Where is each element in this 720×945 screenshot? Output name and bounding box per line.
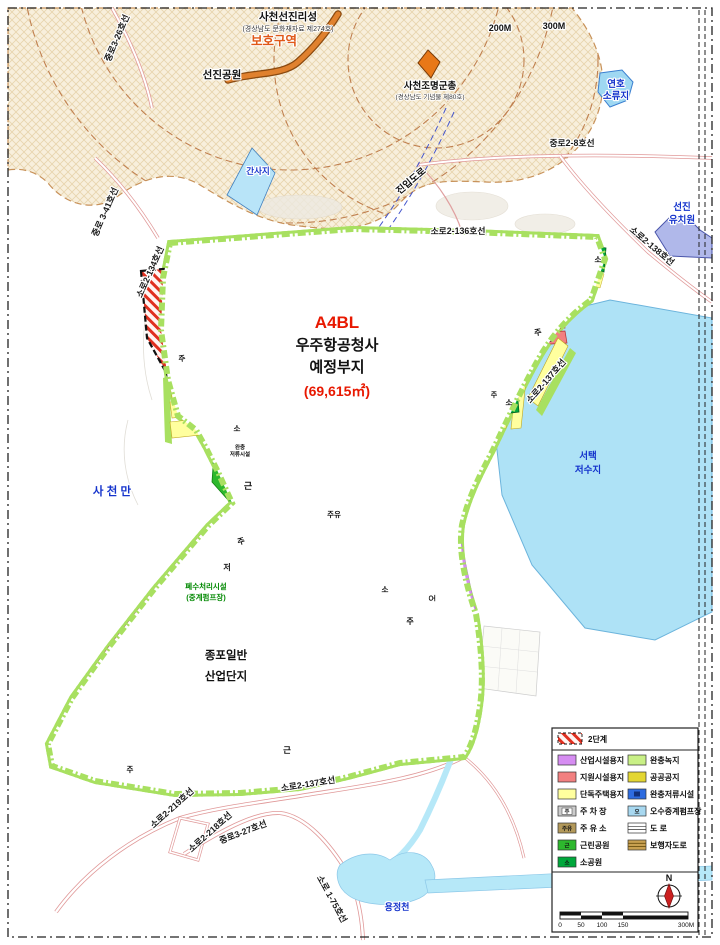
map-page: 사천선진리성 (경상남도 문화재자료 제274호) 보호구역 선진공원 사천조명…: [0, 0, 720, 945]
legend-label-industrial: 산업시설용지: [580, 755, 624, 765]
scale-tick-150: 150: [618, 922, 629, 929]
a4bl-area-label: (69,615㎡): [304, 383, 370, 399]
marker-gas-phase2: 주: [178, 354, 186, 364]
castle-label: 사천선진리성: [259, 10, 317, 23]
reservoir-label-1: 서택: [579, 450, 596, 462]
marker-small-park-right: 소: [506, 398, 513, 407]
a4bl-name-label-1: 우주항공청사: [296, 337, 379, 354]
scale-tick-0: 0: [558, 922, 562, 929]
legend: 2단계 산업시설용지 지원시설용지 단독주택용지 주 주 차 장 주유 주 유 …: [552, 728, 702, 932]
legend-label-sewage: 오수중계펌프장: [650, 806, 702, 816]
tidal-flat-label: 간사지: [246, 166, 269, 176]
scale-tick-50: 50: [577, 922, 585, 929]
complex-label-2: 산업단지: [205, 669, 247, 683]
legend-detention-inner: [634, 792, 640, 797]
legend-phase2-swatch: [558, 733, 582, 744]
road-label-jungro2-8: 중로2-8호선: [549, 137, 594, 148]
tomb-sub-label: (경상남도 기념물 제80호): [396, 92, 465, 101]
marker-detention-1: 완충: [235, 443, 245, 451]
marker-detention-2: 저류시설: [230, 450, 250, 458]
radius-200m-label: 200M: [489, 23, 512, 33]
kindergarten-label-2: 유치원: [669, 214, 695, 226]
marker-small-park-west: 소: [234, 424, 241, 433]
seonjin-park-label: 선진공원: [203, 68, 242, 81]
legend-label-public: 공공공지: [650, 772, 679, 782]
scale-tick-100: 100: [597, 922, 608, 929]
marker-gas-station: 주유: [327, 510, 341, 519]
legend-swatch-industrial: [558, 755, 576, 765]
protection-zone-label: 보호구역: [251, 33, 297, 48]
legend-small-park-letter: 소: [564, 860, 569, 867]
marker-parking-sw: 주: [127, 765, 134, 774]
legend-swatch-road: [628, 823, 646, 833]
radius-300m-label: 300M: [543, 21, 566, 31]
pond-label-1: 연호: [607, 79, 625, 90]
legend-label-pedestrian: 보행자도로: [650, 840, 687, 850]
legend-parking-letter: 주: [564, 808, 569, 816]
marker-parking-small-right: 주: [491, 391, 498, 399]
legend-phase2-label: 2단계: [588, 734, 607, 744]
legend-swatch-public: [628, 772, 646, 782]
marker-neigh-park: 근: [244, 481, 253, 491]
a4bl-name-label-2: 예정부지: [309, 358, 364, 376]
castle-sub-label: (경상남도 문화재자료 제274호): [242, 24, 333, 33]
kindergarten-label-1: 선진: [673, 201, 690, 213]
marker-retention: 저: [223, 562, 230, 572]
marker-sewage-pump: 오: [428, 594, 437, 601]
a4bl-code-label: A4BL: [315, 313, 359, 332]
waste-facility-label-1: 폐수처리시설: [185, 581, 226, 591]
legend-gas-letter: 주유: [562, 825, 572, 833]
zoning-map: 사천선진리성 (경상남도 문화재자료 제274호) 보호구역 선진공원 사천조명…: [0, 0, 720, 945]
tomb-label: 사천조명군총: [404, 80, 457, 92]
legend-swatch-support: [558, 772, 576, 782]
legend-label-road: 도 로: [650, 824, 668, 833]
legend-label-small-park: 소공원: [580, 857, 602, 867]
waste-facility-label-2: (중계펌프장): [186, 592, 226, 602]
marker-parking-lower: 주: [406, 617, 414, 626]
legend-swatch-housing: [558, 789, 576, 799]
pond-label-2: 소류지: [603, 90, 629, 102]
stream-label: 용정천: [385, 901, 410, 912]
legend-label-neigh-park: 근린공원: [580, 840, 609, 850]
marker-neigh-park-south: 근: [283, 745, 291, 755]
legend-label-detention: 완충저류시설: [650, 789, 694, 799]
scale-tick-300m: 300M: [678, 922, 694, 929]
legend-swatch-pedestrian: [628, 840, 646, 850]
bay-label: 사 천 만: [93, 484, 132, 498]
marker-small-park-lower: 소: [382, 585, 389, 594]
north-label: N: [666, 873, 673, 883]
legend-label-buffer-green: 완충녹지: [650, 755, 679, 765]
legend-sewage-letter: 오: [634, 809, 639, 816]
legend-label-housing: 단독주택용지: [580, 789, 624, 799]
road-label-soro2-136: 소로2-136호선: [431, 225, 486, 236]
legend-swatch-buffer-green: [628, 755, 646, 765]
legend-label-gas: 주 유 소: [580, 824, 607, 833]
complex-label-1: 종포일반: [205, 648, 248, 662]
legend-label-parking: 주 차 장: [580, 806, 607, 816]
legend-neigh-park-letter: 근: [564, 842, 569, 850]
reservoir-label-2: 저수지: [575, 464, 601, 476]
marker-small-park-ne: 소: [595, 255, 602, 264]
legend-label-support: 지원시설용지: [580, 772, 624, 782]
